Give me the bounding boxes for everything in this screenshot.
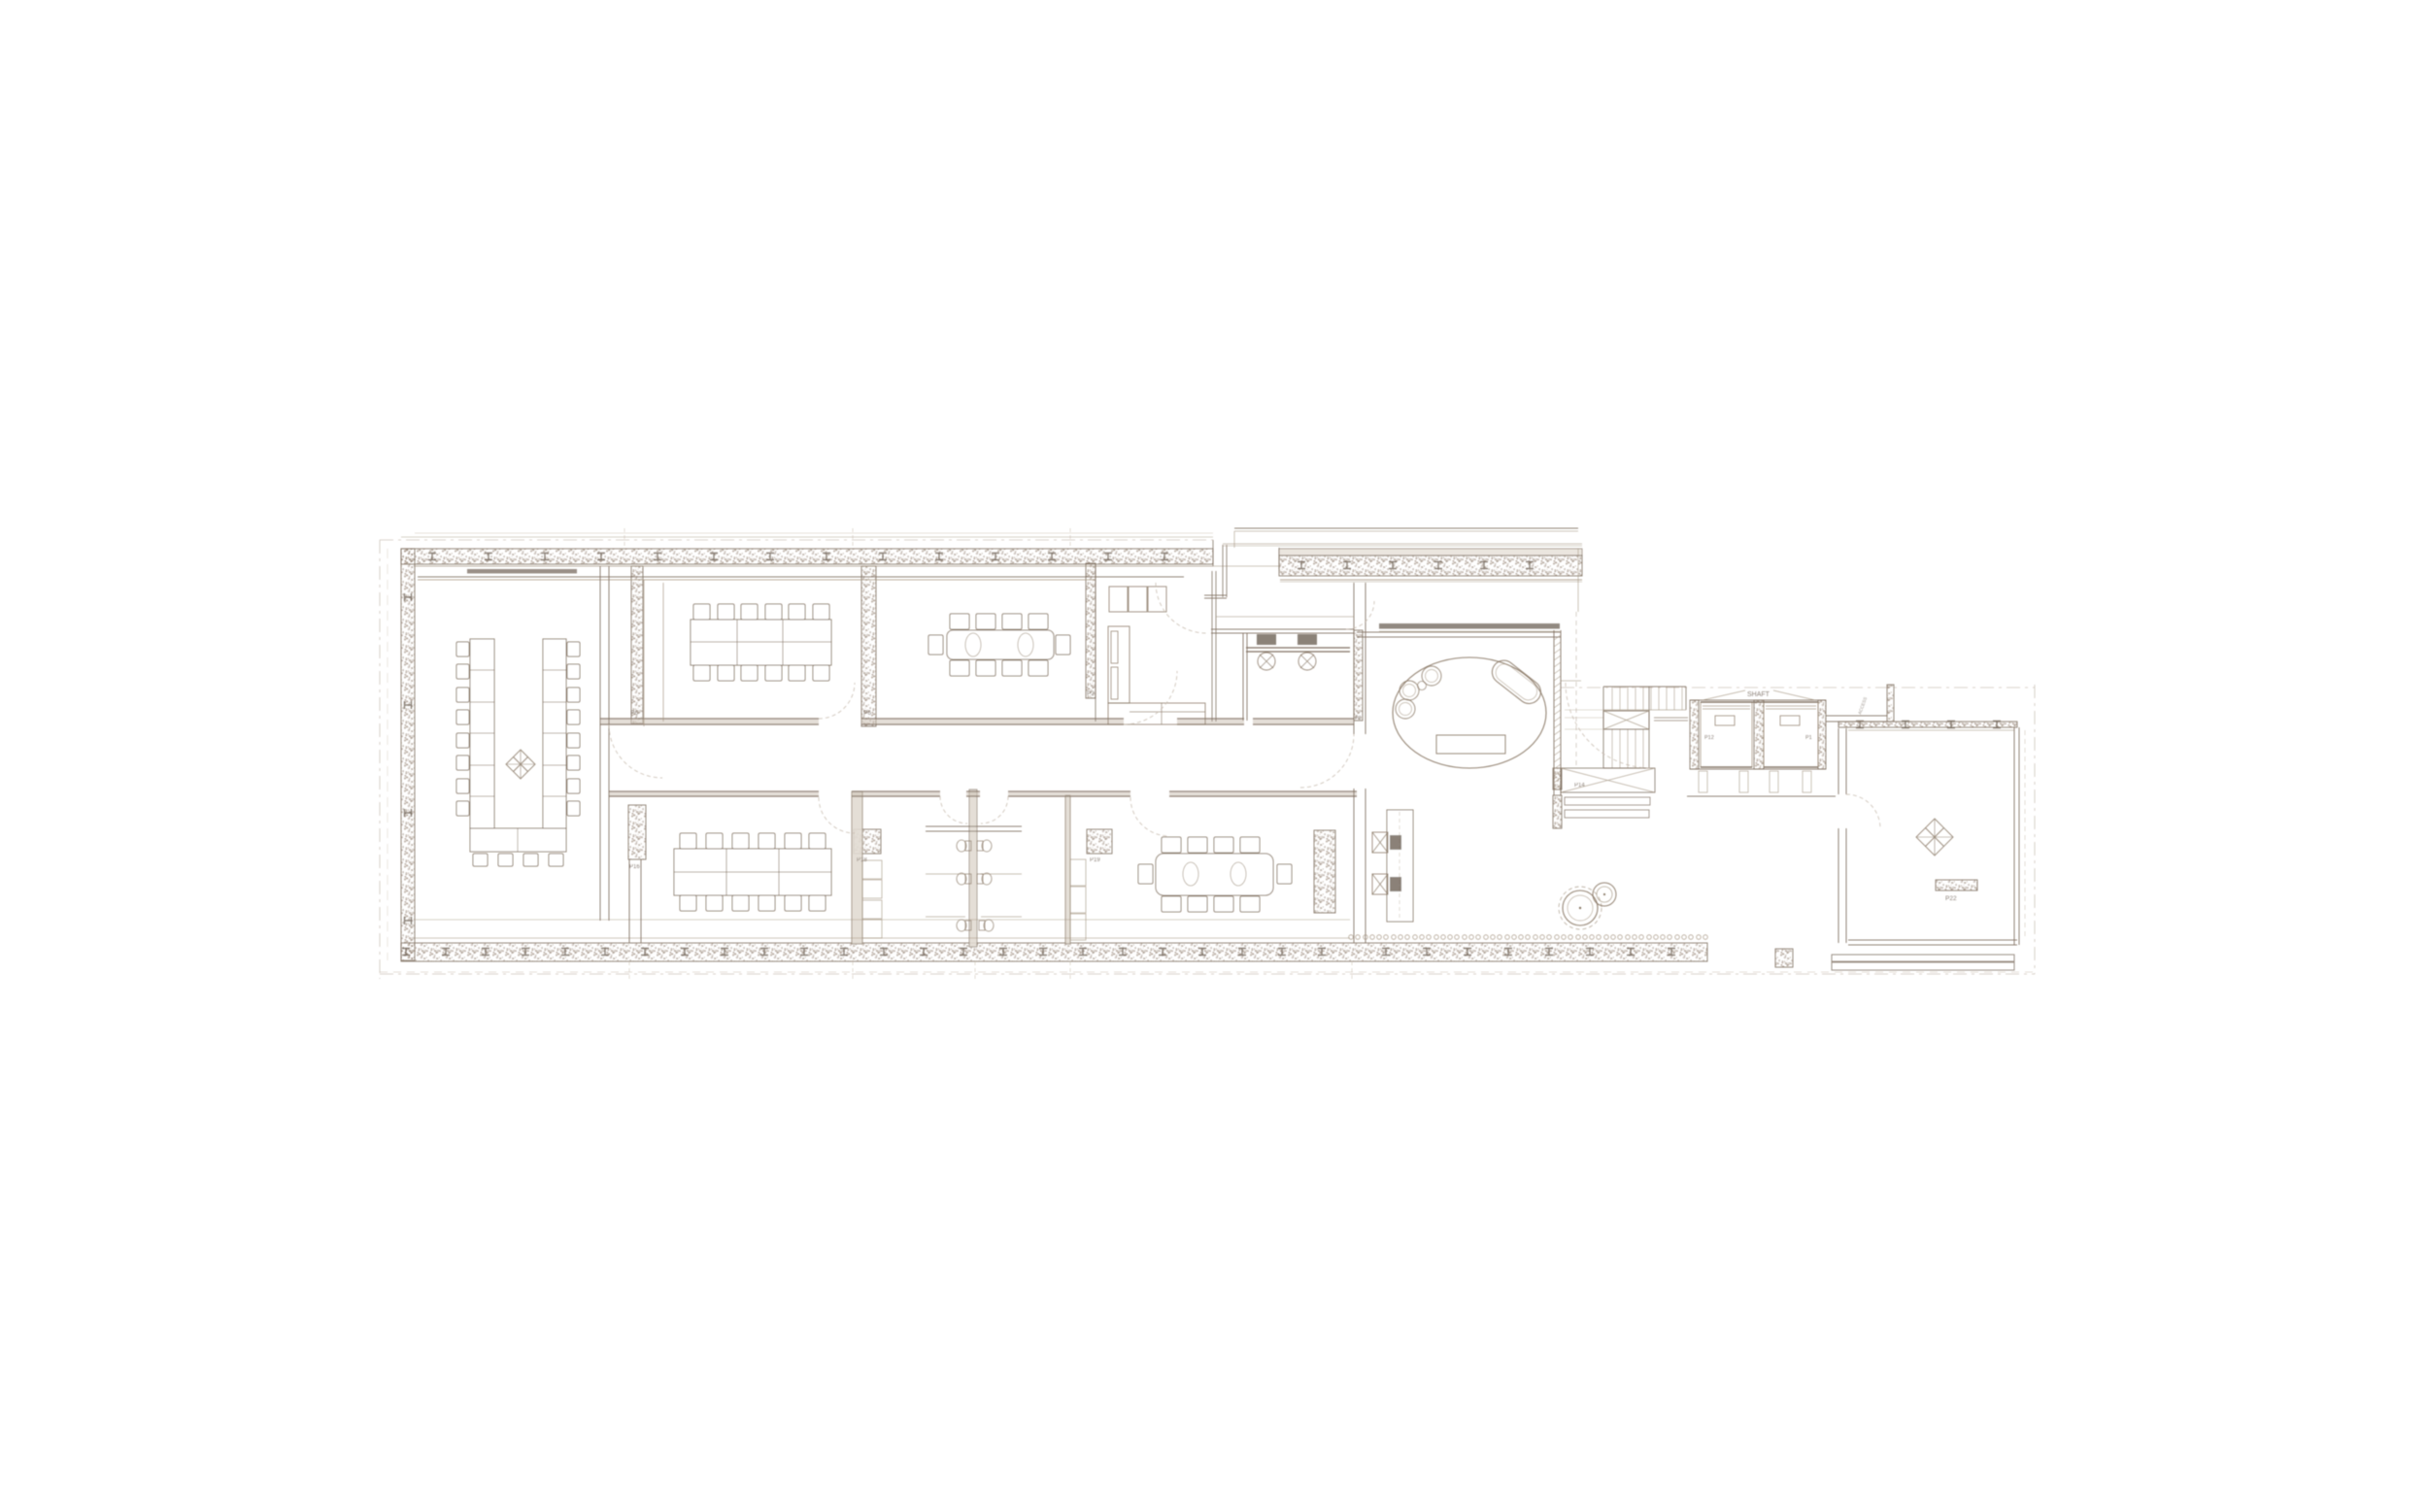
svg-text:P16: P16 [629,864,640,870]
svg-text:P8: P8 [1355,716,1362,722]
svg-text:P12: P12 [1704,735,1714,741]
svg-text:P14: P14 [1574,783,1585,789]
svg-text:P19: P19 [1090,857,1100,863]
svg-text:P22: P22 [1945,895,1957,902]
svg-text:P6: P6 [630,710,638,717]
svg-text:P6: P6 [863,710,871,717]
svg-text:P18: P18 [857,857,867,863]
svg-text:SHAFT: SHAFT [1747,691,1770,698]
svg-text:P1: P1 [1805,735,1812,741]
svg-text:P2: P2 [1087,690,1095,697]
